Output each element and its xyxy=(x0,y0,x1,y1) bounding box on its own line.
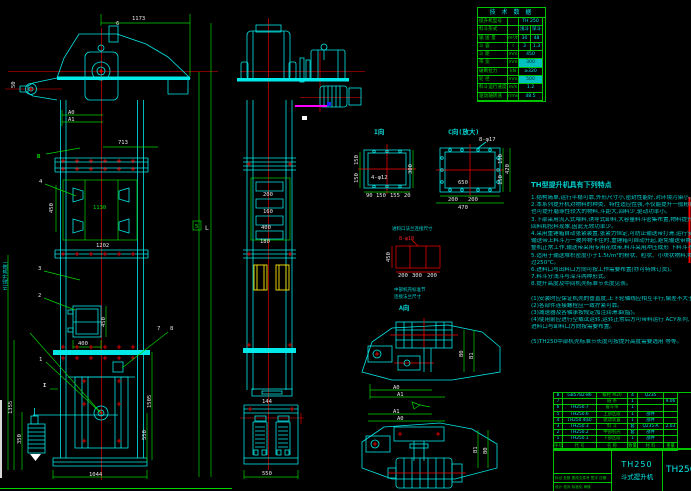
tvb-b0: B0 xyxy=(483,447,489,454)
technical-data-table: 技 术 数 据 提升机型号TH 250料斗形式浅斗深斗输 送 量m³/h3048… xyxy=(477,7,546,102)
tech-label: 输 送 量 xyxy=(478,35,508,43)
flange-450: 450 xyxy=(386,252,392,262)
detail-flange-red xyxy=(392,240,440,272)
tech-unit xyxy=(508,26,519,34)
tech-label: 破断拉力 xyxy=(478,68,508,76)
detail-i-b2: 150 xyxy=(376,193,386,199)
dim-350: 350 xyxy=(17,434,23,444)
detail-i-b3: 155 xyxy=(390,193,400,199)
detail-i-b4: 20 xyxy=(404,193,411,199)
detail-c-b2: 200 xyxy=(468,197,478,203)
design-row: 设计 校对 标准化 审核 xyxy=(554,482,611,491)
tech-unit: m³/h xyxy=(508,35,519,43)
flange-b3: 200 xyxy=(427,273,437,279)
dim-s180: 180 xyxy=(260,239,270,245)
tvb-a0: A0 xyxy=(397,416,404,422)
detail-i-300: 300 xyxy=(408,164,414,174)
model-number: TH250 xyxy=(612,460,662,469)
features-notes: TH型提升机具有下列特点 1.结构简单,运行平稳可靠,外形尺寸小,密封性能好,对… xyxy=(531,180,691,346)
parts-list-table: 8GB5782-86螺栓 M204Q2357链 条19.066TH250.7畚斗… xyxy=(553,392,691,450)
detail-i-holes: 4-φ12 xyxy=(371,175,388,181)
drawing-title-cell: TH250 斗式提升机 xyxy=(612,449,663,491)
tech-unit: mm xyxy=(508,76,519,84)
dim-a1: A1 xyxy=(68,117,75,123)
feature-line: (2)各部件连接螺栓应一致拧紧可靠。 xyxy=(531,303,691,310)
tech-value: TH 250 xyxy=(519,18,543,26)
tva-b1: B1 xyxy=(469,352,475,359)
tech-value: 浅斗 xyxy=(519,26,531,34)
tech-unit: mm xyxy=(508,59,519,67)
feature-line xyxy=(531,288,691,295)
features-lines: 1.结构简单,运行平稳可靠,外形尺寸小,密封性能好,对环境污染小。2.本系列提升… xyxy=(531,195,691,346)
feature-line: 8.提升高度及中间机壳标准节长度见表。 xyxy=(531,281,691,288)
title-block: 标记 处数 更改文件号 签字 日期 设计 校对 标准化 审核 TH250 斗式提… xyxy=(553,448,691,491)
mid-note-1: 中部机壳标准节 xyxy=(394,286,426,293)
motor-marker xyxy=(327,102,331,106)
dim-450: 450 xyxy=(49,203,55,213)
tech-label: 带 宽 xyxy=(478,59,508,67)
feature-line: 也可提升磨琢性较大的物料,斗距大,回料少,驱动功率小。 xyxy=(531,209,691,216)
tech-value: 48.5 xyxy=(519,93,543,101)
dim-head-width: 1173 xyxy=(132,16,145,22)
balloon-8: 8 xyxy=(170,326,173,332)
tech-unit xyxy=(508,18,519,26)
tech-label: 轮 径 xyxy=(478,76,508,84)
side-view-elevator xyxy=(237,18,365,479)
dim-50: 50 xyxy=(11,81,17,88)
balloon-6: 6 xyxy=(116,21,119,27)
feature-line: 过250℃。 xyxy=(531,260,691,267)
feature-line: (4)使用前应进行空载试运转,运转正常后方可带料运行 ACY系列, xyxy=(531,317,691,324)
tech-unit: kN xyxy=(508,68,519,76)
cad-canvas: { "tech_table": { "title": "技 术 数 据", "r… xyxy=(0,0,691,491)
tech-table-title: 技 术 数 据 xyxy=(478,8,545,18)
feature-line: 进料口与卸料口方向按需要布置。 xyxy=(531,324,691,331)
buckets-yellow xyxy=(254,265,289,290)
feature-line: (3)减速器及各轴承按规定加注润滑油(脂)。 xyxy=(531,310,691,317)
dim-s160: 160 xyxy=(263,209,273,215)
tvb-a1: A1 xyxy=(393,409,400,415)
dim-1044: 1044 xyxy=(89,472,103,478)
detail-c-150b: 150 xyxy=(498,175,504,185)
feature-line: 4.采用重锤箱自动张紧装置,张紧力恒定,可防止输送带打滑,运行安全可靠, xyxy=(531,231,691,238)
flange-b1: 200 xyxy=(398,273,408,279)
detail-i-title: I向 xyxy=(374,127,385,136)
dim-s200: 200 xyxy=(263,192,273,198)
detail-view-c xyxy=(436,142,510,203)
tech-unit: mm xyxy=(508,51,519,59)
dim-550-front: 550 xyxy=(142,430,148,440)
tva-a1: A1 xyxy=(397,392,404,398)
balloon-2: 2 xyxy=(38,293,41,299)
view-b-label: B xyxy=(37,154,41,160)
tech-value: 500 xyxy=(519,76,543,84)
dim-1202: 1202 xyxy=(96,243,109,249)
flange-b2: 300 xyxy=(412,273,422,279)
tech-label: 斗 距 xyxy=(478,51,508,59)
flange-holes: 8-φ18 xyxy=(399,236,414,242)
feature-line: 输送带上料斗万一被异物卡住时,重锤箱可自动升起,避免输送带撕裂,保证 xyxy=(531,238,691,245)
feature-line: 1.结构简单,运行平稳可靠,外形尺寸小,密封性能好,对环境污染小。 xyxy=(531,195,691,202)
balloon-5: 5 xyxy=(195,224,198,230)
dim-a0: A0 xyxy=(68,110,75,116)
dim-1355: 1355 xyxy=(8,401,14,414)
detail-c-title: C向(放大) xyxy=(448,127,479,136)
tech-label: 料斗运行速度 xyxy=(478,84,508,92)
drawing-number: TH250 xyxy=(663,449,691,491)
mid-note-2: 连接法兰尺寸 xyxy=(394,293,421,300)
dim-s144: 144 xyxy=(262,399,273,405)
flange-title: 进料口法兰连接尺寸 xyxy=(392,225,433,232)
feature-line: 6.进料口与出料口方向可按工作需要布置(亦可特殊订货)。 xyxy=(531,267,691,274)
detail-c-holes: 8-φ17 xyxy=(479,137,496,143)
dim-1130: 1130 xyxy=(93,205,106,211)
feature-line xyxy=(531,332,691,339)
balloon-3: 3 xyxy=(38,266,41,272)
tech-unit: l xyxy=(508,43,519,51)
tech-unit: r/min xyxy=(508,93,519,101)
tech-label: 驱动轴转速 xyxy=(478,93,508,101)
parts-list-body: 8GB5782-86螺栓 M204Q2357链 条19.066TH250.7畚斗… xyxy=(554,393,691,449)
view-a-label: A向 xyxy=(399,303,410,312)
section-i-label: I xyxy=(43,383,46,389)
tech-label: 料斗形式 xyxy=(478,26,508,34)
tech-table-body: 提升机型号TH 250料斗形式浅斗深斗输 送 量m³/h3048斗 容l31.3… xyxy=(478,18,545,101)
tech-label: 斗 容 xyxy=(478,43,508,51)
feature-line: (5)TH250中部机壳标准节长度可按提升高度需要选用 等等。 xyxy=(531,339,691,346)
feature-line: 2.本系列提升机对物料的种类、特性适应性强,不仅能提升一般粉状、粒状物料, xyxy=(531,202,691,209)
tech-unit: m/s xyxy=(508,84,519,92)
features-title: TH型提升机具有下列特点 xyxy=(531,180,691,190)
dim-400: 400 xyxy=(78,341,88,347)
detail-i-150a: 150 xyxy=(354,155,360,165)
product-name: 斗式提升机 xyxy=(612,471,662,481)
tech-value: 3 xyxy=(519,43,531,51)
detail-c-650: 650 xyxy=(458,180,468,186)
detail-c-b1: 200 xyxy=(448,197,458,203)
detail-c-420: 420 xyxy=(505,164,511,174)
dim-marker xyxy=(302,116,307,120)
dim-s550: 550 xyxy=(262,471,272,477)
feature-line: 回料和挖料现象,因此无效功率少。 xyxy=(531,224,691,231)
detail-c-150a: 150 xyxy=(498,154,504,164)
tva-b0: B0 xyxy=(459,350,465,357)
detail-c-b3: 470 xyxy=(458,205,468,211)
tech-value: 450 xyxy=(519,51,543,59)
dim-h-note: H(提升高度) xyxy=(2,261,9,290)
revision-area: 标记 处数 更改文件号 签字 日期 设计 校对 标准化 审核 xyxy=(554,449,612,491)
counterweight-arrow xyxy=(30,454,41,461)
tva-a0: A0 xyxy=(393,385,400,391)
balloon-1: 1 xyxy=(39,357,42,363)
tech-value: 1.2 xyxy=(519,84,543,92)
balloon-4: 4 xyxy=(39,179,43,185)
dim-713: 713 xyxy=(118,140,128,146)
detail-i-150b: 150 xyxy=(354,173,360,183)
front-view-elevator xyxy=(5,14,218,480)
balloon-7: 7 xyxy=(157,326,160,332)
tvb-b1: B1 xyxy=(473,446,479,453)
tech-value: 30 xyxy=(519,35,531,43)
tech-value: ≥320 xyxy=(519,68,543,76)
tech-value: 300 xyxy=(519,59,543,67)
tech-label: 提升机型号 xyxy=(478,18,508,26)
dim-door-height: 450 xyxy=(101,317,107,327)
tech-value: 48 xyxy=(531,35,543,43)
dim-1505: 1505 xyxy=(147,395,153,408)
feature-line: 5.适用于输送堆积密度小于1.5t/m³的粉状、粒状、小块状物料,物料温度不超 xyxy=(531,253,691,260)
feature-line: 整机正常工作,输送带采用专用花纹带,料斗采用冲压成形 下料斗不易损坏。 xyxy=(531,245,691,252)
detail-i-b1: 90 xyxy=(366,193,373,199)
tech-value: 深斗 xyxy=(531,26,543,34)
revision-row: 标记 处数 更改文件号 签字 日期 xyxy=(554,473,611,482)
tech-value: 1.3 xyxy=(531,43,543,51)
feature-line: 3.下部采用流入式喂料,诱导式卸料,大容量料斗密集布置,物料提升时几乎无 xyxy=(531,217,691,224)
feature-line: (1)安装时应保证机壳的垂直度,上下轮轴线应相互平行,偏差不大于规定值。 xyxy=(531,296,691,303)
feature-line: 7.料斗分浅斗与深斗两种形式。 xyxy=(531,274,691,281)
dim-l-label: L xyxy=(205,224,209,232)
top-view-a xyxy=(362,318,500,409)
dim-s400: 400 xyxy=(261,225,271,231)
